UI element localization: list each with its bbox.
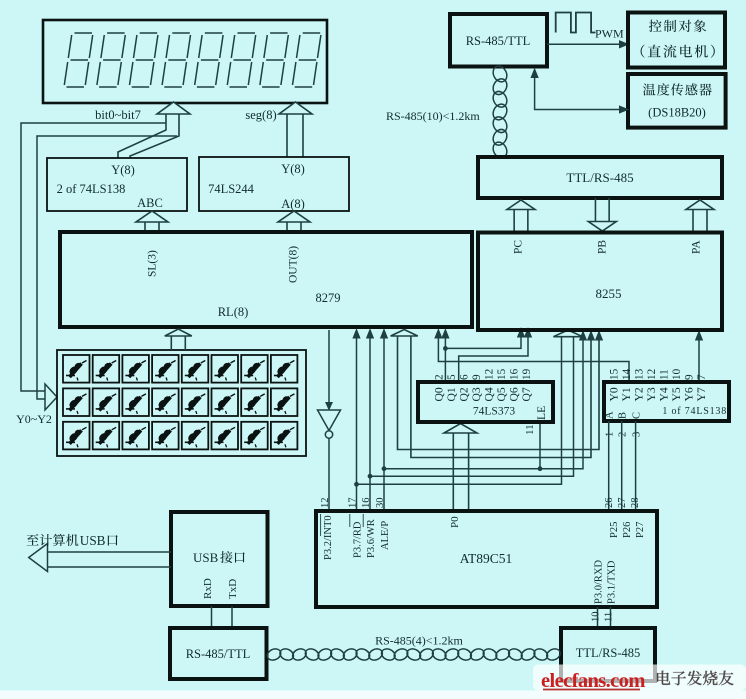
svg-text:P27: P27 (635, 522, 646, 538)
svg-text:TTL/RS-485: TTL/RS-485 (576, 646, 641, 660)
svg-text:9: 9 (471, 374, 483, 380)
svg-text:Q1: Q1 (445, 387, 458, 401)
svg-text:PB: PB (597, 240, 609, 254)
svg-text:AT89C51: AT89C51 (460, 551, 513, 566)
svg-text:Q6: Q6 (507, 387, 520, 401)
svg-text:11: 11 (524, 424, 536, 435)
svg-text:12: 12 (646, 369, 658, 380)
svg-text:P3.6/WR: P3.6/WR (366, 519, 377, 558)
svg-text:17: 17 (348, 498, 359, 509)
svg-text:2 of 74LS138: 2 of 74LS138 (57, 182, 126, 196)
svg-text:12: 12 (483, 369, 495, 380)
svg-text:P3.7/RD: P3.7/RD (353, 521, 364, 558)
svg-text:Q5: Q5 (495, 387, 508, 401)
svg-text:P25: P25 (609, 522, 620, 538)
svg-text:C: C (632, 412, 643, 419)
svg-text:8255: 8255 (596, 286, 622, 301)
svg-text:11: 11 (658, 369, 670, 380)
svg-text:Y3: Y3 (645, 387, 658, 401)
svg-text:Y2: Y2 (632, 387, 645, 401)
svg-text:(DS18B20): (DS18B20) (648, 106, 706, 120)
svg-text:ABC: ABC (137, 196, 163, 210)
svg-text:OUT(8): OUT(8) (288, 246, 300, 283)
svg-text:7: 7 (696, 374, 708, 380)
svg-text:74LS373: 74LS373 (473, 406, 515, 418)
svg-text:P26: P26 (622, 522, 633, 538)
svg-text:15: 15 (496, 368, 508, 380)
svg-text:TTL/RS-485: TTL/RS-485 (566, 170, 633, 185)
svg-text:Y6: Y6 (683, 387, 696, 401)
svg-text:RxD: RxD (202, 578, 214, 599)
svg-text:11: 11 (604, 612, 615, 622)
svg-text:B: B (618, 412, 629, 419)
svg-text:8279: 8279 (316, 291, 341, 305)
svg-text:bit0~bit7: bit0~bit7 (95, 108, 141, 122)
svg-text:RS-485(10)<1.2km: RS-485(10)<1.2km (386, 109, 480, 123)
svg-text:Y0: Y0 (607, 387, 620, 401)
svg-text:USB: USB (193, 550, 219, 565)
svg-text:30: 30 (375, 498, 386, 509)
svg-text:seg(8): seg(8) (245, 108, 276, 122)
svg-text:Y4: Y4 (657, 387, 670, 401)
svg-text:19: 19 (521, 368, 533, 380)
svg-text:Y7: Y7 (695, 387, 708, 401)
svg-text:10: 10 (591, 612, 602, 623)
svg-text:Q3: Q3 (470, 387, 483, 401)
svg-text:74LS244: 74LS244 (208, 182, 255, 196)
svg-text:2: 2 (618, 432, 629, 437)
svg-text:14: 14 (621, 368, 633, 380)
svg-text:27: 27 (617, 498, 628, 509)
svg-text:RS-485/TTL: RS-485/TTL (186, 647, 251, 661)
svg-text:Q4: Q4 (482, 387, 495, 401)
svg-text:28: 28 (630, 498, 641, 509)
svg-text:1 of 74LS138: 1 of 74LS138 (662, 406, 727, 417)
svg-text:13: 13 (633, 368, 645, 380)
svg-text:Q0: Q0 (433, 387, 446, 401)
svg-text:Y5: Y5 (670, 387, 683, 401)
svg-text:P3.1/TXD: P3.1/TXD (607, 560, 618, 604)
svg-text:P3.2/INT0: P3.2/INT0 (323, 515, 334, 560)
svg-text:Q2: Q2 (458, 387, 471, 401)
svg-text:RS-485(4)<1.2km: RS-485(4)<1.2km (375, 634, 463, 648)
svg-text:Y(8): Y(8) (111, 163, 135, 177)
svg-text:2: 2 (434, 374, 446, 380)
svg-text:PA: PA (691, 240, 703, 254)
svg-text:Q7: Q7 (520, 387, 533, 401)
svg-text:26: 26 (604, 498, 615, 509)
svg-text:5: 5 (446, 374, 458, 380)
svg-text:10: 10 (671, 368, 683, 380)
svg-text:16: 16 (508, 368, 520, 380)
svg-text:RS-485/TTL: RS-485/TTL (466, 34, 531, 48)
svg-text:USB: USB (80, 533, 106, 548)
svg-text:P3.0/RXD: P3.0/RXD (594, 560, 605, 604)
svg-text:A(8): A(8) (281, 197, 305, 211)
svg-text:SL(3): SL(3) (147, 250, 159, 277)
svg-text:16: 16 (361, 498, 372, 509)
svg-text:Y(8): Y(8) (281, 162, 305, 176)
svg-text:ALE/P: ALE/P (380, 521, 391, 550)
svg-text:12: 12 (320, 498, 331, 509)
svg-text:Y1: Y1 (620, 387, 633, 401)
svg-text:RL(8): RL(8) (218, 305, 249, 319)
svg-text:PC: PC (513, 240, 525, 254)
svg-text:P0: P0 (449, 516, 461, 528)
svg-text:3: 3 (632, 432, 643, 437)
svg-text:1: 1 (605, 432, 616, 437)
svg-text:LE: LE (535, 406, 548, 420)
svg-text:Y0~Y2: Y0~Y2 (16, 412, 52, 426)
svg-text:TxD: TxD (227, 579, 239, 599)
svg-text:9: 9 (684, 374, 696, 380)
svg-text:15: 15 (608, 368, 620, 380)
svg-text:A: A (605, 411, 616, 419)
svg-text:PWM: PWM (595, 27, 624, 41)
svg-text:6: 6 (459, 374, 471, 380)
